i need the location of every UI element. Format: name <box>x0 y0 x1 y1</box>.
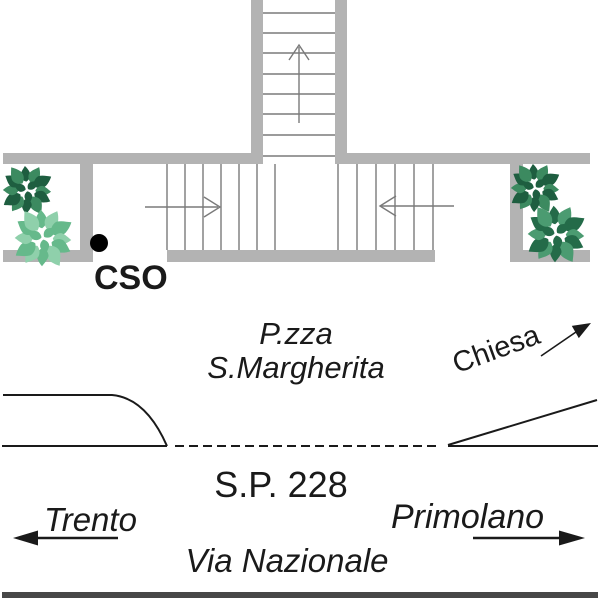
arrow-head <box>13 531 38 546</box>
right-staircase <box>338 164 454 250</box>
street-label: Via Nazionale <box>185 542 388 580</box>
piazza-label: P.zza S.Margherita <box>207 317 384 385</box>
vertical-stair-right-wall <box>335 0 347 164</box>
piazza-label-line1: P.zza <box>207 317 384 351</box>
vertical-staircase <box>263 13 335 156</box>
arrow-head <box>572 323 591 338</box>
road-branch-to-church <box>448 400 597 445</box>
destination-west-label: Trento <box>44 501 137 539</box>
bottom-border-bar <box>2 592 598 598</box>
chiesa-arrow-icon <box>541 323 591 356</box>
tree <box>1 164 54 217</box>
road-upper-edge <box>3 395 167 446</box>
road <box>2 395 598 446</box>
destination-east-label: Primolano <box>391 498 544 537</box>
piazza-label-line2: S.Margherita <box>207 351 384 385</box>
top-wall-right <box>335 153 590 164</box>
provincial-road-label: S.P. 228 <box>214 464 347 506</box>
stairs-bottom-wall <box>167 250 435 262</box>
top-wall-left <box>3 153 263 164</box>
up-arrow-icon <box>289 45 309 123</box>
cso-marker-label: CSO <box>94 259 168 298</box>
arrow-shaft <box>541 332 576 356</box>
right-arrow-icon <box>145 197 220 217</box>
left-staircase <box>145 164 275 250</box>
arrow-head <box>559 531 585 546</box>
vertical-stair-left-wall <box>251 0 263 164</box>
piazza-map: CSO P.zza S.Margherita Chiesa S.P. 228 T… <box>0 0 600 600</box>
walls <box>3 0 590 262</box>
left-arrow-icon <box>380 196 454 216</box>
cso-marker-dot <box>90 234 108 252</box>
